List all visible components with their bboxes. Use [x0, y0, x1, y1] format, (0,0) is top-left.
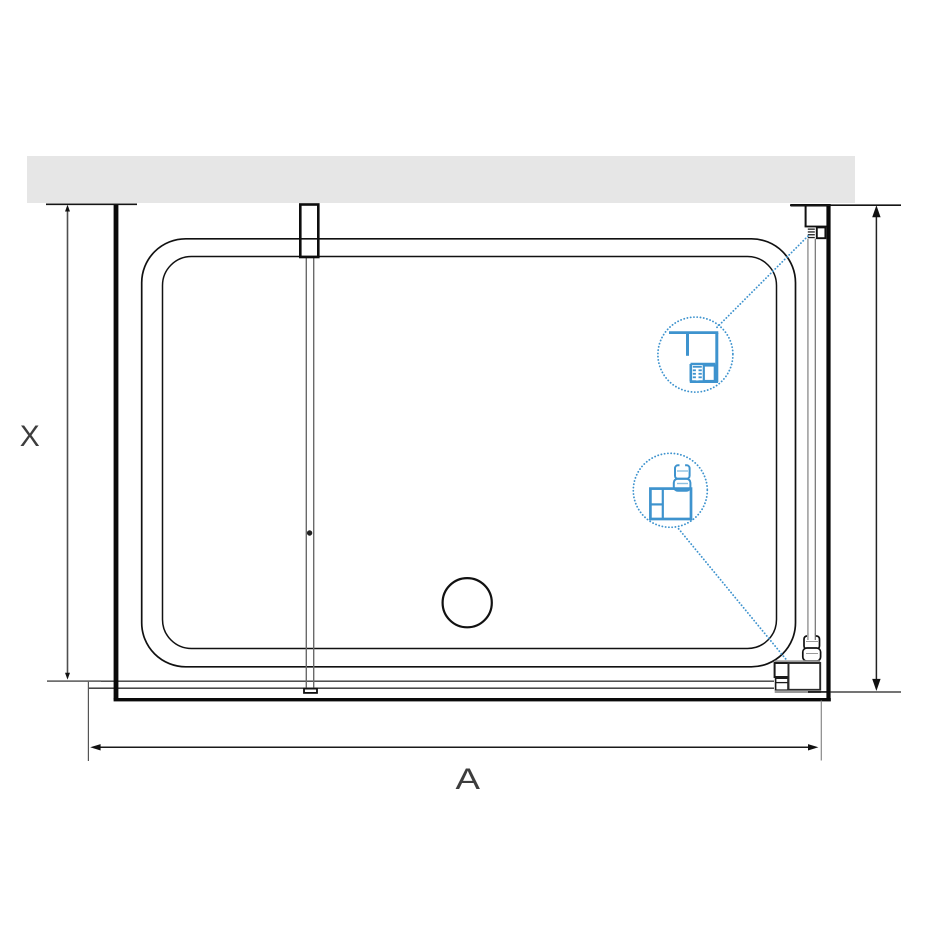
- svg-text:X: X: [20, 420, 40, 453]
- svg-text:A: A: [456, 763, 481, 796]
